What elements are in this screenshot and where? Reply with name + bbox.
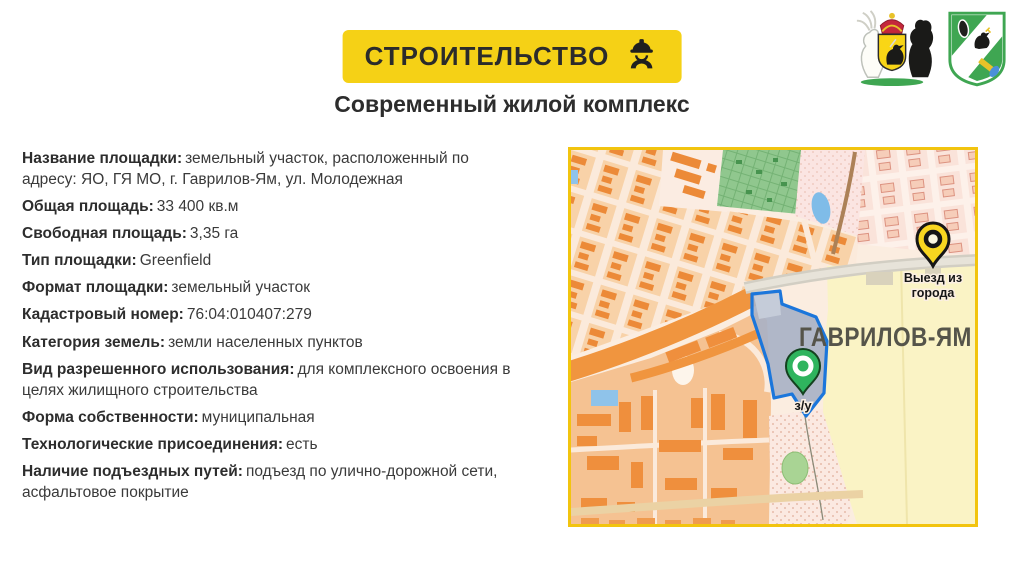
detail-item: Форма собственности:муниципальная: [22, 407, 520, 428]
detail-item: Формат площадки:земельный участок: [22, 277, 520, 298]
map-pool: [591, 390, 618, 406]
slide: { "header": { "badge": { "label": "СТРОИ…: [0, 0, 1024, 574]
page-title: Современный жилой комплекс: [0, 91, 1024, 118]
pin-label-line: з/у: [794, 398, 812, 413]
detail-value: 76:04:010407:279: [187, 306, 312, 323]
emblems: [848, 9, 1008, 94]
gavrilov-yam-district-coat-of-arms-icon: [946, 9, 1008, 94]
detail-label: Кадастровый номер:: [22, 306, 184, 323]
detail-value: есть: [286, 436, 318, 453]
detail-value: 3,35 га: [190, 225, 238, 242]
yaroslavl-region-coat-of-arms-icon: [848, 9, 936, 92]
detail-item: Тип площадки:Greenfield: [22, 250, 520, 271]
detail-label: Технологические присоединения:: [22, 436, 283, 453]
city-label: ГАВРИЛОВ-ЯМ: [799, 322, 972, 352]
map-pond-small: [571, 170, 578, 184]
section-badge-label: СТРОИТЕЛЬСТВО: [365, 41, 610, 72]
detail-label: Тип площадки:: [22, 252, 137, 269]
detail-label: Категория земель:: [22, 334, 165, 351]
detail-value: 33 400 кв.м: [157, 198, 239, 215]
detail-item: Технологические присоединения:есть: [22, 434, 520, 455]
site-details-list: Название площадки:земельный участок, рас…: [22, 148, 520, 509]
detail-label: Вид разрешенного использования:: [22, 361, 295, 378]
detail-value: муниципальная: [202, 409, 315, 426]
detail-value: земли населенных пунктов: [168, 334, 363, 351]
detail-item: Название площадки:земельный участок, рас…: [22, 148, 520, 190]
detail-item: Наличие подъездных путей:подъезд по улич…: [22, 461, 520, 503]
detail-item: Вид разрешенного использования:для компл…: [22, 359, 520, 401]
detail-item: Категория земель:земли населенных пункто…: [22, 332, 520, 353]
detail-label: Форма собственности:: [22, 409, 199, 426]
detail-value: земельный участок: [171, 279, 310, 296]
detail-label: Формат площадки:: [22, 279, 168, 296]
construction-worker-icon: [623, 38, 659, 75]
section-badge: СТРОИТЕЛЬСТВО: [343, 30, 682, 83]
detail-item: Общая площадь:33 400 кв.м: [22, 196, 520, 217]
detail-label: Название площадки:: [22, 150, 182, 167]
detail-item: Кадастровый номер:76:04:010407:279: [22, 304, 520, 325]
pin-label-line: Выезд из: [904, 271, 962, 285]
map-container: ГАВРИЛОВ-ЯМ Выезд из города з/у: [568, 147, 978, 527]
detail-label: Наличие подъездных путей:: [22, 463, 243, 480]
detail-value: Greenfield: [140, 252, 212, 269]
city-map: ГАВРИЛОВ-ЯМ Выезд из города з/у: [571, 150, 975, 524]
pin-label-line: города: [912, 286, 956, 300]
detail-label: Общая площадь:: [22, 198, 154, 215]
detail-item: Свободная площадь:3,35 га: [22, 223, 520, 244]
map-garden-plots: [717, 150, 807, 214]
detail-label: Свободная площадь:: [22, 225, 187, 242]
